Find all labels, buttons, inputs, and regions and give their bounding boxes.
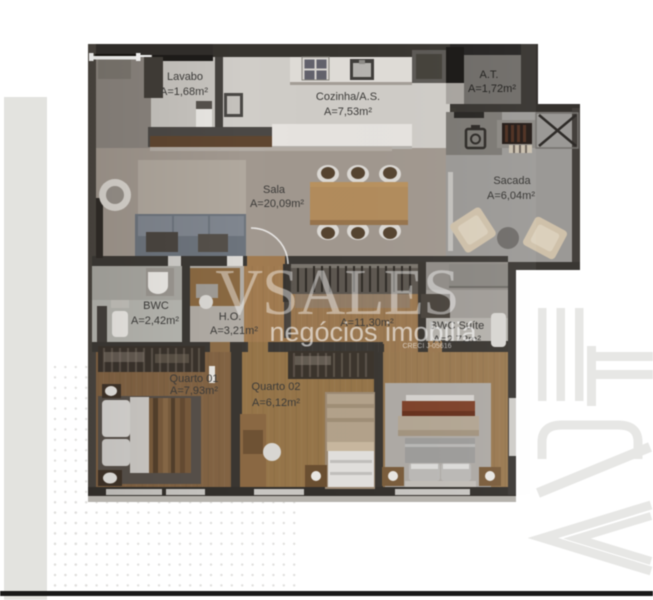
- svg-text:Cozinha/A.S.: Cozinha/A.S.: [316, 91, 380, 103]
- svg-text:BWC: BWC: [143, 300, 169, 312]
- svg-text:A.T.: A.T.: [480, 69, 499, 81]
- svg-text:Sacada: Sacada: [493, 175, 531, 187]
- svg-text:A=20,09m²: A=20,09m²: [250, 198, 304, 210]
- svg-text:A=7,93m²: A=7,93m²: [170, 385, 218, 397]
- svg-text:A=6,12m²: A=6,12m²: [252, 397, 300, 409]
- svg-text:A=1,68m²: A=1,68m²: [160, 86, 208, 98]
- svg-text:Quarto 02: Quarto 02: [252, 381, 301, 393]
- svg-text:A=6,04m²: A=6,04m²: [487, 190, 535, 202]
- svg-text:Lavabo: Lavabo: [167, 71, 203, 83]
- svg-text:Sala: Sala: [263, 184, 286, 196]
- svg-text:A=7,53m²: A=7,53m²: [324, 106, 372, 118]
- svg-text:Quarto 01: Quarto 01: [170, 373, 219, 385]
- svg-text:A=1,72m²: A=1,72m²: [468, 83, 516, 95]
- svg-text:CRECI J-05616: CRECI J-05616: [402, 343, 451, 350]
- svg-text:A=2,42m²: A=2,42m²: [131, 315, 179, 327]
